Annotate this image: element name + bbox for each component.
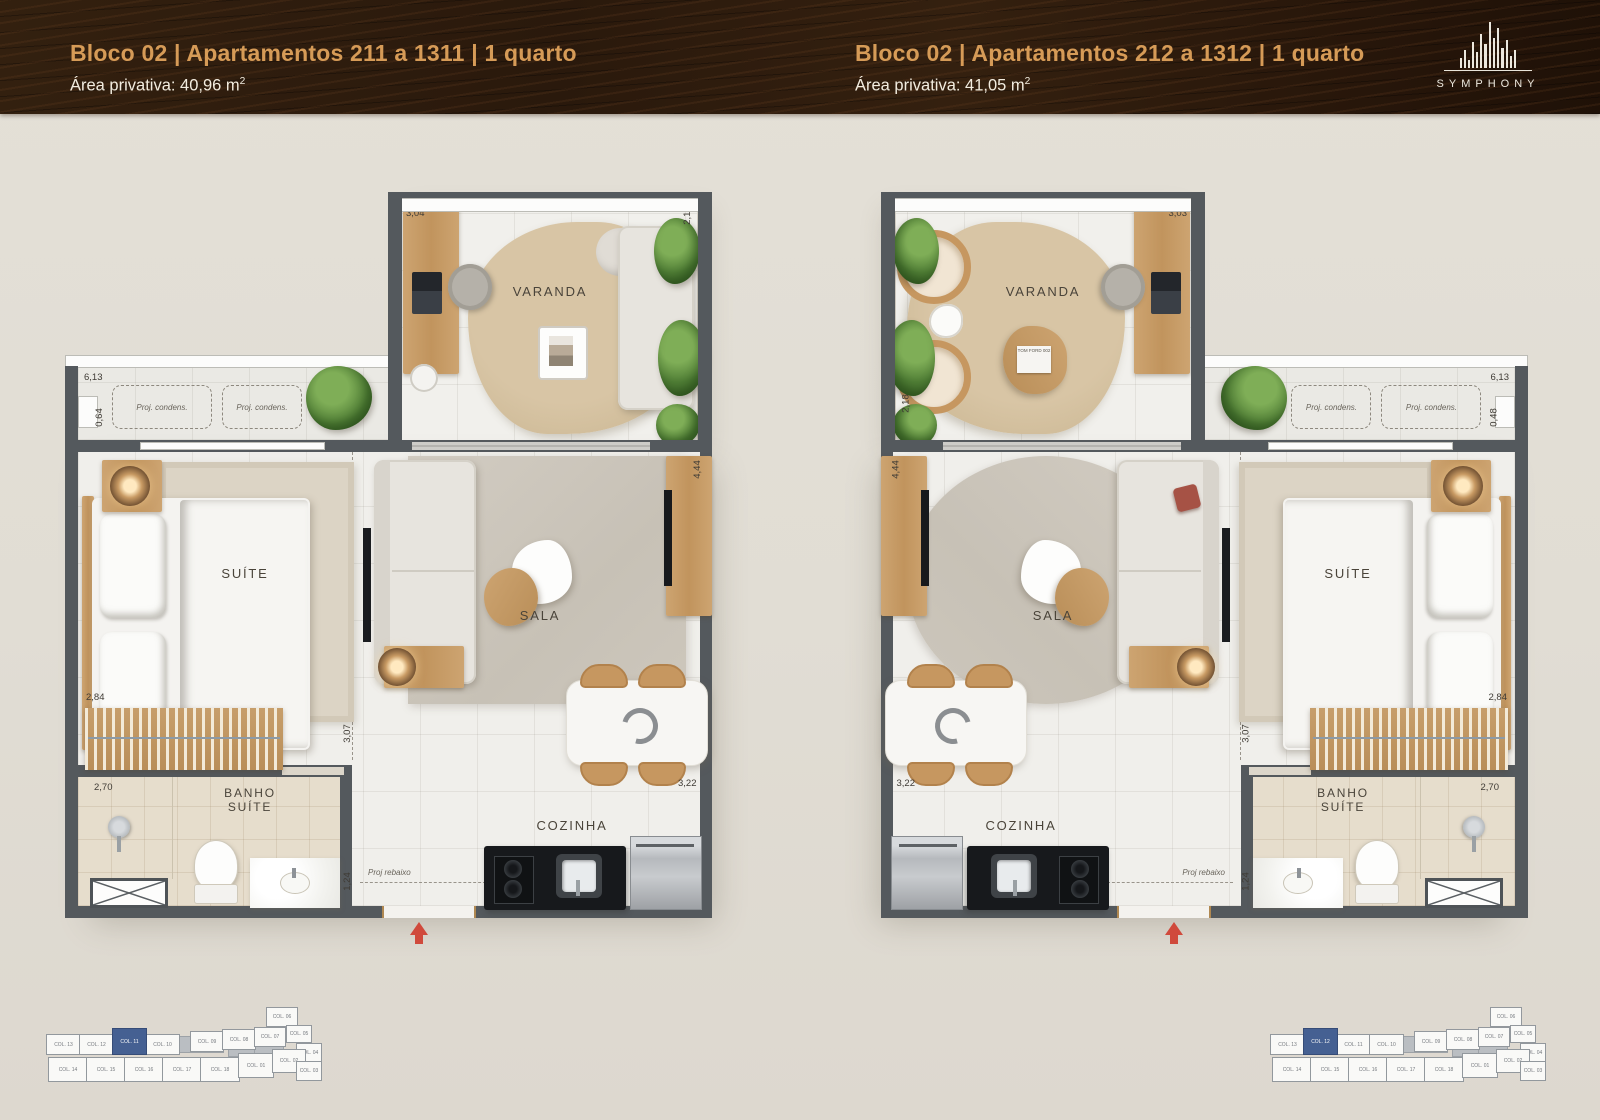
suite-window xyxy=(1268,442,1453,450)
logo-baseline xyxy=(1444,70,1532,71)
wall xyxy=(388,192,402,442)
floor-lamp xyxy=(1177,648,1215,686)
keyplan-unit: COL. 06 xyxy=(266,1007,298,1027)
rebaixo-label: Proj rebaixo xyxy=(1182,868,1225,877)
shower-divider xyxy=(1420,777,1421,879)
burner xyxy=(504,860,522,878)
dining-chair xyxy=(965,664,1013,688)
cozinha-label: COZINHA xyxy=(512,818,632,833)
keyplan-unit: COL. 13 xyxy=(46,1034,81,1055)
keyplan-unit: COL. 17 xyxy=(162,1057,202,1082)
shaft-x-icon xyxy=(93,881,165,905)
keyplan-unit: COL. 05 xyxy=(1510,1025,1536,1043)
plan-title-right: Bloco 02 | Apartamentos 212 a 1312 | 1 q… xyxy=(855,40,1364,67)
kitchen-faucet xyxy=(576,880,580,896)
banho-label-line2: SUÍTE xyxy=(1283,800,1403,814)
wall xyxy=(698,192,712,442)
keyplan-unit: COL. 14 xyxy=(1272,1057,1312,1082)
toilet-tank xyxy=(194,884,238,904)
shaft xyxy=(90,878,168,908)
keyplan-unit: COL. 08 xyxy=(222,1029,256,1050)
sala-tv xyxy=(921,490,929,586)
cozinha-label: COZINHA xyxy=(961,818,1081,833)
burner xyxy=(1071,880,1089,898)
laptop xyxy=(1151,272,1181,314)
keyplan-unit: COL. 18 xyxy=(1424,1057,1464,1082)
burner xyxy=(504,880,522,898)
varanda-label: VARANDA xyxy=(973,284,1113,299)
toilet-tank xyxy=(1355,884,1399,904)
suite-label: SUÍTE xyxy=(1293,566,1403,581)
sala-tv xyxy=(664,490,672,586)
closet xyxy=(1310,708,1508,770)
varanda-label: VARANDA xyxy=(480,284,620,299)
closet-rail xyxy=(1313,737,1505,739)
keyplan-unit: COL. 03 xyxy=(296,1061,322,1081)
keyplan-unit: COL. 12 xyxy=(79,1034,114,1055)
entry-arrow-icon xyxy=(408,922,430,948)
floor-lamp xyxy=(378,648,416,686)
varanda-railing-glass xyxy=(887,198,1197,212)
keyplan-unit: COL. 07 xyxy=(254,1027,286,1047)
closet-rail xyxy=(88,737,280,739)
table-lamp xyxy=(1443,466,1483,506)
toilet-bowl xyxy=(194,840,238,890)
keyplan-unit: COL. 01 xyxy=(238,1053,274,1078)
table-lamp xyxy=(110,466,150,506)
bathroom-door xyxy=(1249,767,1311,775)
dim-hall-depth: 3,07 xyxy=(342,724,353,743)
dim-sala-depth: 4,44 xyxy=(692,460,703,479)
rebaixo-line xyxy=(1107,882,1233,883)
toilet-bowl xyxy=(1355,840,1399,890)
dim-hall-depth: 3,07 xyxy=(1240,724,1251,743)
kitchen-faucet xyxy=(1013,880,1017,896)
suite-tv xyxy=(1222,528,1230,642)
keyplan-unit: COL. 09 xyxy=(1414,1031,1448,1052)
wall xyxy=(1241,777,1253,918)
faucet xyxy=(1297,868,1301,878)
bathroom-door xyxy=(282,767,344,775)
keyplan-unit: COL. 17 xyxy=(1386,1057,1426,1082)
shower-divider xyxy=(172,777,173,879)
keyplan-unit: COL. 12 xyxy=(1303,1028,1338,1055)
suite-window xyxy=(140,442,325,450)
keyplan-unit: COL. 15 xyxy=(1310,1057,1350,1082)
plant xyxy=(893,218,939,284)
keyplan-unit: COL. 11 xyxy=(112,1028,147,1055)
condenser-projection: Proj. condens. xyxy=(222,385,302,429)
dishwasher xyxy=(630,836,702,910)
rebaixo-label: Proj rebaixo xyxy=(368,868,411,877)
sliding-door xyxy=(943,442,1181,450)
dim-facade-width: 6,13 xyxy=(84,372,103,383)
rebaixo-line xyxy=(360,882,486,883)
suite-tv xyxy=(363,528,371,642)
dim-suite-width: 2,84 xyxy=(86,692,105,703)
entry-door xyxy=(382,906,476,918)
coffee-table-book: TOM FORD 002 xyxy=(1017,346,1051,373)
banho-label-line1: BANHO xyxy=(1283,786,1403,800)
entry-arrow-icon xyxy=(1163,922,1185,948)
plant xyxy=(1221,366,1287,430)
laptop xyxy=(412,272,442,314)
keyplan-unit: COL. 15 xyxy=(86,1057,126,1082)
keyplan-unit: COL. 10 xyxy=(1369,1034,1404,1055)
symphony-logo: SYMPHONY xyxy=(1430,16,1546,90)
keyplan-unit: COL. 08 xyxy=(1446,1029,1480,1050)
wall xyxy=(881,192,895,442)
sala-label: SALA xyxy=(993,608,1113,623)
keyplan-unit: COL. 11 xyxy=(1336,1034,1371,1055)
plan-area-left: Área privativa: 40,96 m2 xyxy=(70,76,245,96)
shaft-x-icon xyxy=(1428,881,1500,905)
brochure-page: Bloco 02 | Apartamentos 211 a 1311 | 1 q… xyxy=(0,0,1600,1120)
dim-cozinha-width: 3,22 xyxy=(897,778,916,789)
plan-title-left: Bloco 02 | Apartamentos 211 a 1311 | 1 q… xyxy=(70,40,577,67)
floor-plan-1: VARANDA 3,04 2,18 6,13 0,64 Proj. conden… xyxy=(60,180,735,945)
closet xyxy=(85,708,283,770)
dim-banho-width: 2,70 xyxy=(94,782,113,793)
dim-varanda-depth: 2,18 xyxy=(900,394,911,413)
keyplan-left: COL. 13COL. 12COL. 11COL. 10COL. 09COL. … xyxy=(38,1000,322,1092)
banho-label-line1: BANHO xyxy=(190,786,310,800)
keyplan-unit: COL. 05 xyxy=(286,1025,312,1043)
keyplan-right: COL. 13COL. 12COL. 11COL. 10COL. 09COL. … xyxy=(1262,1000,1546,1092)
faucet xyxy=(292,868,296,878)
keyplan-unit: COL. 14 xyxy=(48,1057,88,1082)
dining-chair xyxy=(907,664,955,688)
wall xyxy=(340,777,352,918)
shower-stem xyxy=(1472,836,1476,852)
dim-facade-width: 6,13 xyxy=(1491,372,1510,383)
header: Bloco 02 | Apartamentos 211 a 1311 | 1 q… xyxy=(0,0,1600,114)
dim-ledge-depth: 0,48 xyxy=(1488,408,1499,427)
bed-pillow xyxy=(1427,514,1493,618)
condenser-label: Proj. condens. xyxy=(136,403,187,412)
varanda-side-table xyxy=(929,304,963,338)
sala-label: SALA xyxy=(480,608,600,623)
magazine xyxy=(549,336,573,366)
shaft xyxy=(1425,878,1503,908)
sofa-cushion-split xyxy=(392,570,474,572)
shower-head xyxy=(1463,816,1485,838)
shower-head xyxy=(108,816,130,838)
dishwasher-handle xyxy=(899,844,957,847)
condenser-label: Proj. condens. xyxy=(1405,403,1456,412)
banho-label-line2: SUÍTE xyxy=(190,800,310,814)
varanda-railing-glass xyxy=(396,198,706,212)
condenser-projection: Proj. condens. xyxy=(112,385,212,429)
keyplan-unit: COL. 09 xyxy=(190,1031,224,1052)
symphony-logo-bars-icon xyxy=(1430,16,1546,68)
dining-chair xyxy=(638,664,686,688)
wall xyxy=(1191,192,1205,442)
shower-stem xyxy=(117,836,121,852)
bed-pillow xyxy=(100,514,166,618)
keyplan-unit: COL. 16 xyxy=(124,1057,164,1082)
sliding-door xyxy=(412,442,650,450)
suite-label: SUÍTE xyxy=(190,566,300,581)
keyplan-unit: COL. 03 xyxy=(1520,1061,1546,1081)
keyplan-unit: COL. 18 xyxy=(200,1057,240,1082)
dishwasher xyxy=(891,836,963,910)
dim-ledge-depth: 0,64 xyxy=(94,408,105,427)
plan-area-right: Área privativa: 41,05 m2 xyxy=(855,76,1030,96)
keyplan-unit: COL. 01 xyxy=(1462,1053,1498,1078)
dim-banho-depth: 1,24 xyxy=(1240,872,1251,891)
dim-sala-depth: 4,44 xyxy=(890,460,901,479)
keyplan-unit: COL. 16 xyxy=(1348,1057,1388,1082)
condenser-projection: Proj. condens. xyxy=(1381,385,1481,429)
condenser-label: Proj. condens. xyxy=(236,403,287,412)
burner xyxy=(1071,860,1089,878)
keyplan-unit: COL. 07 xyxy=(1478,1027,1510,1047)
keyplan-unit: COL. 13 xyxy=(1270,1034,1305,1055)
tv-console xyxy=(666,456,712,616)
round-side-table xyxy=(410,364,438,392)
dim-banho-width: 2,70 xyxy=(1481,782,1500,793)
keyplan-unit: COL. 10 xyxy=(145,1034,180,1055)
keyplan-unit: COL. 06 xyxy=(1490,1007,1522,1027)
dining-chair xyxy=(580,664,628,688)
floor-plan-2: TOM FORD 002 VARANDA 3,03 2,18 6,13 0,48… xyxy=(858,180,1533,945)
entry-door xyxy=(1117,906,1211,918)
condenser-projection: Proj. condens. xyxy=(1291,385,1371,429)
condenser-label: Proj. condens. xyxy=(1305,403,1356,412)
dim-cozinha-width: 3,22 xyxy=(678,778,697,789)
dishwasher-handle xyxy=(636,844,694,847)
logo-text: SYMPHONY xyxy=(1430,78,1546,90)
dim-banho-depth: 1,24 xyxy=(342,872,353,891)
sofa-cushion-split xyxy=(1119,570,1201,572)
dim-suite-width: 2,84 xyxy=(1489,692,1508,703)
